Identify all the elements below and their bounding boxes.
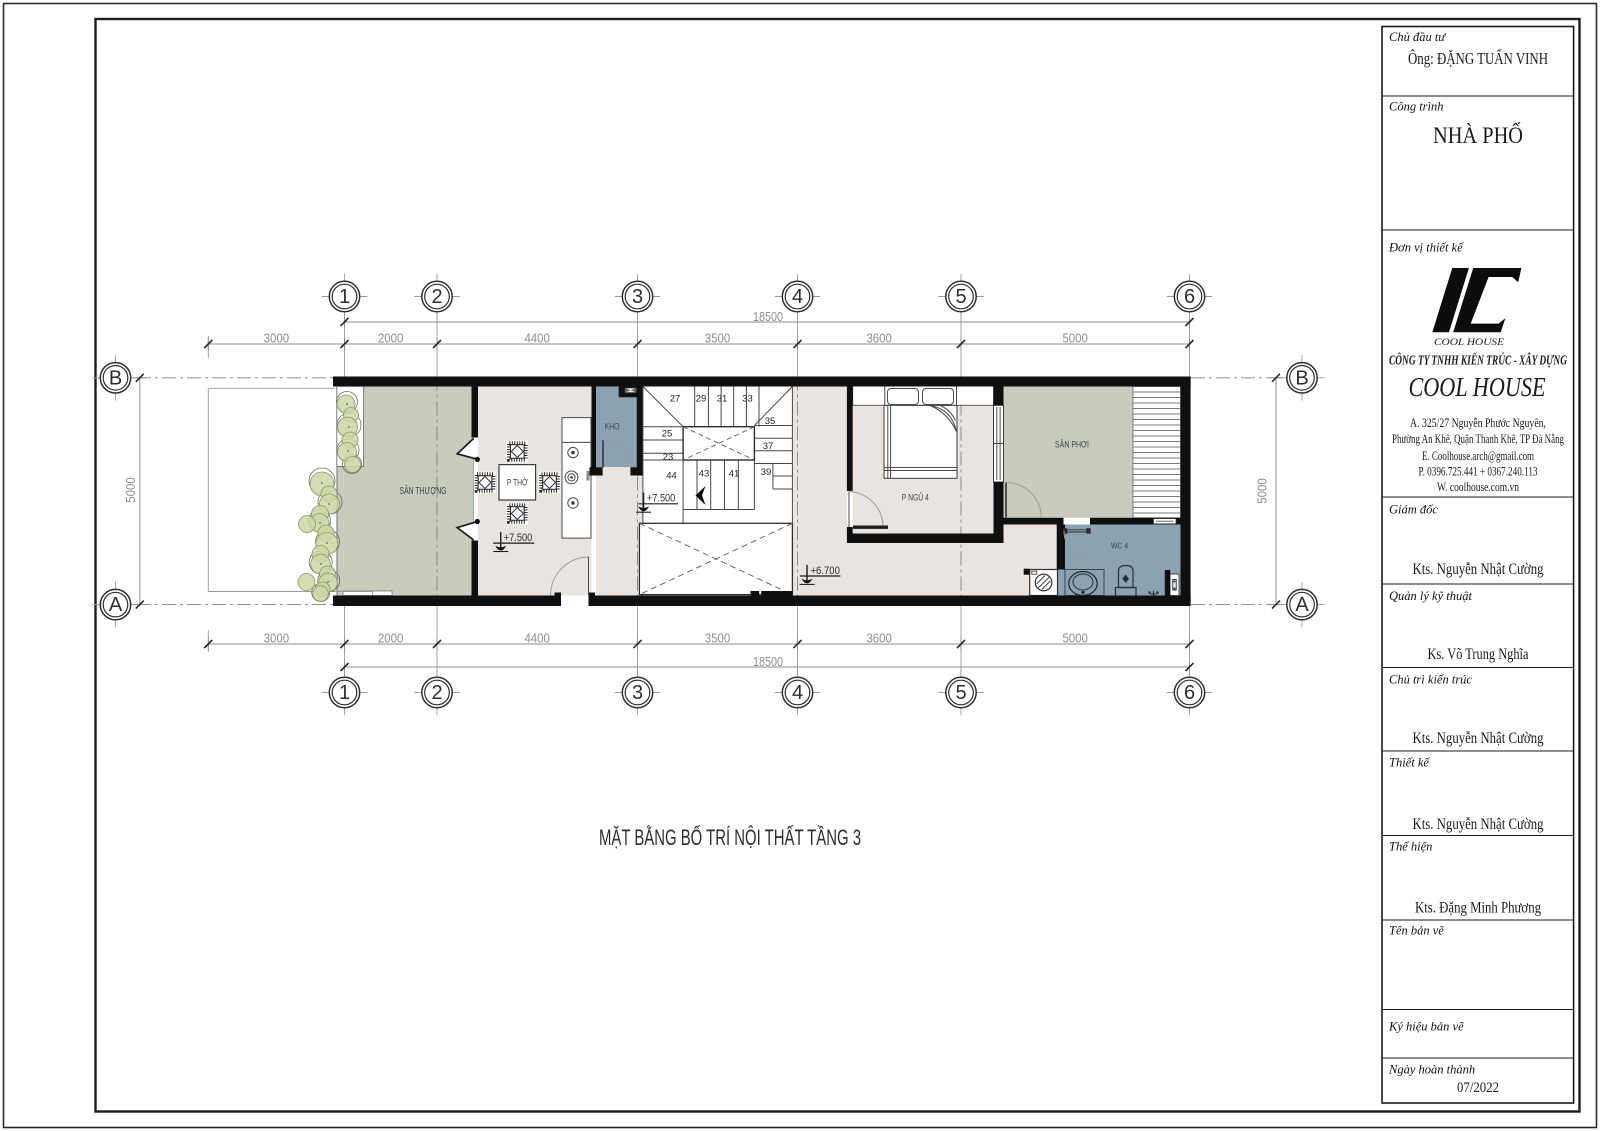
svg-text:E. Coolhouse.arch@gmail.com: E. Coolhouse.arch@gmail.com	[1422, 449, 1534, 463]
svg-text:Tên bản vẽ: Tên bản vẽ	[1389, 924, 1444, 938]
svg-text:W. coolhouse.com.vn: W. coolhouse.com.vn	[1437, 480, 1519, 494]
svg-text:+7.500: +7.500	[647, 493, 675, 505]
svg-text:4: 4	[792, 286, 803, 308]
svg-text:4: 4	[792, 682, 803, 704]
svg-text:3000: 3000	[264, 332, 290, 346]
svg-text:5000: 5000	[1062, 632, 1088, 646]
svg-text:25: 25	[662, 429, 673, 440]
svg-text:Công trình: Công trình	[1389, 100, 1444, 114]
svg-text:2000: 2000	[378, 632, 404, 646]
svg-text:35: 35	[765, 416, 776, 427]
svg-text:Đơn vị thiết kế: Đơn vị thiết kế	[1388, 241, 1464, 255]
svg-text:CÔNG TY TNHH KIẾN TRÚC - XÂY D: CÔNG TY TNHH KIẾN TRÚC - XÂY DỰNG	[1389, 353, 1567, 368]
svg-text:43: 43	[699, 469, 710, 480]
svg-text:Ký hiệu bản vẽ: Ký hiệu bản vẽ	[1388, 1020, 1464, 1034]
svg-text:23: 23	[663, 452, 674, 463]
svg-text:3: 3	[632, 682, 643, 704]
svg-text:33: 33	[742, 394, 753, 405]
svg-text:WC 4: WC 4	[1111, 541, 1128, 551]
svg-text:5000: 5000	[1062, 332, 1088, 346]
svg-text:COOL HOUSE: COOL HOUSE	[1434, 337, 1504, 347]
svg-text:5000: 5000	[1256, 478, 1270, 504]
svg-text:Kts. Nguyễn Nhật Cường: Kts. Nguyễn Nhật Cường	[1413, 561, 1544, 578]
svg-text:A. 325/27 Nguyễn Phước Nguyên,: A. 325/27 Nguyễn Phước Nguyên,	[1410, 416, 1546, 430]
svg-text:Ks. Võ Trung Nghĩa: Ks. Võ Trung Nghĩa	[1428, 646, 1529, 663]
svg-text:Kts. Nguyễn Nhật Cường: Kts. Nguyễn Nhật Cường	[1413, 816, 1544, 833]
svg-text:A: A	[1295, 594, 1309, 616]
svg-text:Kts. Đặng Minh Phương: Kts. Đặng Minh Phương	[1415, 900, 1541, 917]
svg-text:6: 6	[1184, 286, 1195, 308]
svg-text:2: 2	[431, 682, 442, 704]
svg-text:+7.500: +7.500	[504, 532, 533, 544]
svg-text:41: 41	[729, 469, 740, 480]
svg-text:KHO: KHO	[605, 422, 620, 433]
svg-text:3500: 3500	[705, 332, 731, 346]
svg-text:18500: 18500	[753, 655, 783, 669]
svg-text:44: 44	[666, 471, 677, 482]
svg-text:3: 3	[632, 286, 643, 308]
svg-text:29: 29	[696, 394, 707, 405]
svg-text:1: 1	[339, 286, 350, 308]
svg-text:Chủ đầu tư: Chủ đầu tư	[1389, 30, 1446, 44]
svg-text:Thể hiện: Thể hiện	[1389, 840, 1432, 854]
svg-text:Quản lý kỹ thuật: Quản lý kỹ thuật	[1389, 589, 1472, 603]
svg-text:3000: 3000	[264, 632, 290, 646]
svg-text:NHÀ PHỐ: NHÀ PHỐ	[1433, 122, 1523, 148]
svg-text:Kts. Nguyễn Nhật Cường: Kts. Nguyễn Nhật Cường	[1413, 730, 1544, 747]
svg-text:Thiết kế: Thiết kế	[1389, 756, 1430, 770]
svg-text:5: 5	[955, 682, 966, 704]
svg-text:39: 39	[761, 467, 772, 478]
svg-text:6: 6	[1184, 682, 1195, 704]
svg-text:Giám đốc: Giám đốc	[1389, 503, 1438, 517]
svg-text:18500: 18500	[753, 310, 783, 324]
svg-text:37: 37	[763, 441, 774, 452]
svg-text:Ông: ĐẶNG TUẤN VINH: Ông: ĐẶNG TUẤN VINH	[1408, 49, 1548, 68]
svg-text:27: 27	[670, 394, 681, 405]
svg-text:SÂN PHƠI: SÂN PHƠI	[1055, 440, 1089, 450]
svg-text:A: A	[109, 594, 123, 616]
svg-text:31: 31	[717, 394, 728, 405]
svg-text:Ngày hoàn thành: Ngày hoàn thành	[1388, 1063, 1475, 1077]
svg-text:P. 0396.725.441 + 0367.240.113: P. 0396.725.441 + 0367.240.113	[1419, 465, 1538, 479]
svg-text:SÂN THƯỢNG: SÂN THƯỢNG	[400, 484, 447, 497]
svg-text:2: 2	[431, 286, 442, 308]
svg-text:5000: 5000	[124, 477, 138, 503]
svg-text:B: B	[1295, 367, 1308, 389]
svg-text:Chủ trì kiến trúc: Chủ trì kiến trúc	[1389, 673, 1472, 687]
svg-text:P NGỦ 4: P NGỦ 4	[902, 492, 929, 503]
svg-text:5: 5	[955, 286, 966, 308]
svg-text:Phường An Khê, Quận Thanh Khê,: Phường An Khê, Quận Thanh Khê, TP Đà Nẵn…	[1392, 432, 1564, 446]
svg-text:4400: 4400	[524, 632, 550, 646]
svg-text:1: 1	[339, 682, 350, 704]
svg-text:07/2022: 07/2022	[1457, 1080, 1499, 1096]
svg-text:MẶT BẰNG BỐ TRÍ NỘI THẤT TẦNG: MẶT BẰNG BỐ TRÍ NỘI THẤT TẦNG 3	[599, 824, 861, 850]
svg-text:3600: 3600	[866, 632, 892, 646]
svg-text:P THỜ: P THỜ	[507, 478, 528, 488]
svg-text:+6.700: +6.700	[810, 565, 840, 577]
svg-text:4400: 4400	[524, 332, 550, 346]
svg-text:2000: 2000	[378, 332, 404, 346]
svg-text:3500: 3500	[705, 632, 731, 646]
svg-text:COOL HOUSE: COOL HOUSE	[1409, 372, 1546, 402]
svg-text:B: B	[109, 367, 122, 389]
svg-text:3600: 3600	[866, 332, 892, 346]
